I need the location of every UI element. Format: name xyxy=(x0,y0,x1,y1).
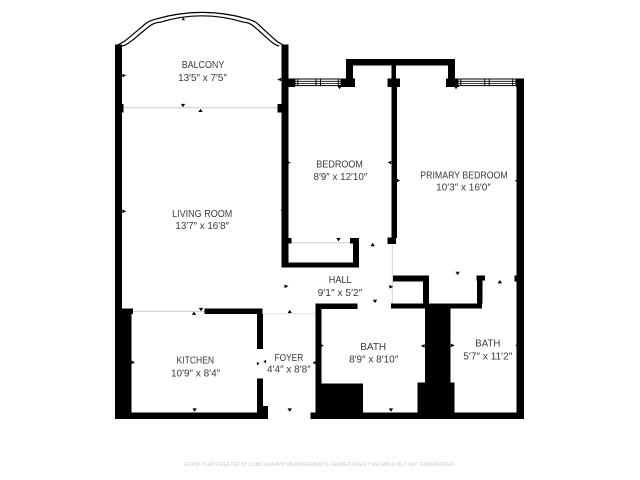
svg-text:10′9″ x 8′4″: 10′9″ x 8′4″ xyxy=(171,369,221,380)
svg-text:FLOOR PLAN CREATED BY CUBICASA: FLOOR PLAN CREATED BY CUBICASA APP. MEAS… xyxy=(184,462,456,468)
svg-text:8′9″ x 8′10″: 8′9″ x 8′10″ xyxy=(349,354,399,365)
svg-text:13′5″ x 7′5″: 13′5″ x 7′5″ xyxy=(178,73,227,84)
svg-text:PRIMARY BEDROOM: PRIMARY BEDROOM xyxy=(420,170,507,181)
svg-text:BALCONY: BALCONY xyxy=(182,60,225,71)
svg-text:5′7″ x 11′2″: 5′7″ x 11′2″ xyxy=(463,351,512,362)
svg-text:FOYER: FOYER xyxy=(275,353,304,364)
svg-text:BEDROOM: BEDROOM xyxy=(316,159,363,170)
svg-text:13′7″ x 16′8″: 13′7″ x 16′8″ xyxy=(175,221,229,232)
svg-text:BATH: BATH xyxy=(475,339,500,350)
svg-text:4′4″ x 8′8″: 4′4″ x 8′8″ xyxy=(267,365,311,376)
svg-text:HALL: HALL xyxy=(329,275,352,286)
svg-text:9′1″ x 5′2″: 9′1″ x 5′2″ xyxy=(318,288,363,299)
svg-text:BATH: BATH xyxy=(360,342,386,353)
svg-text:LIVING ROOM: LIVING ROOM xyxy=(172,209,232,220)
svg-text:KITCHEN: KITCHEN xyxy=(177,356,215,367)
svg-text:8′9″ x 12′10″: 8′9″ x 12′10″ xyxy=(314,172,368,183)
svg-text:10′3″ x 16′0″: 10′3″ x 16′0″ xyxy=(436,183,491,194)
